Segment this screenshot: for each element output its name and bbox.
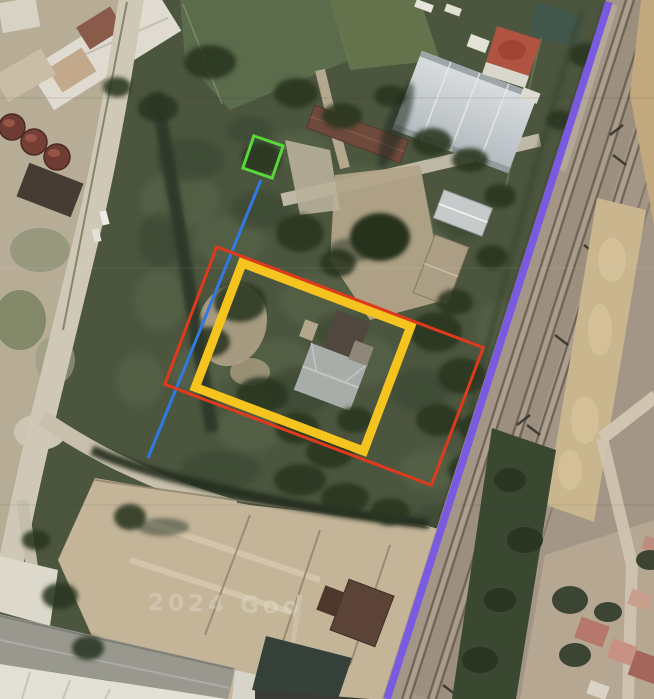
satellite-map[interactable]: 2024 Goo	[0, 0, 654, 699]
green-structure-outline	[243, 136, 283, 178]
yellow-building-outline	[195, 263, 410, 451]
blue-connector-line	[148, 180, 261, 458]
red-parcel-outline	[165, 247, 484, 485]
annotation-overlay	[0, 0, 654, 699]
purple-boundary-line	[387, 2, 609, 699]
